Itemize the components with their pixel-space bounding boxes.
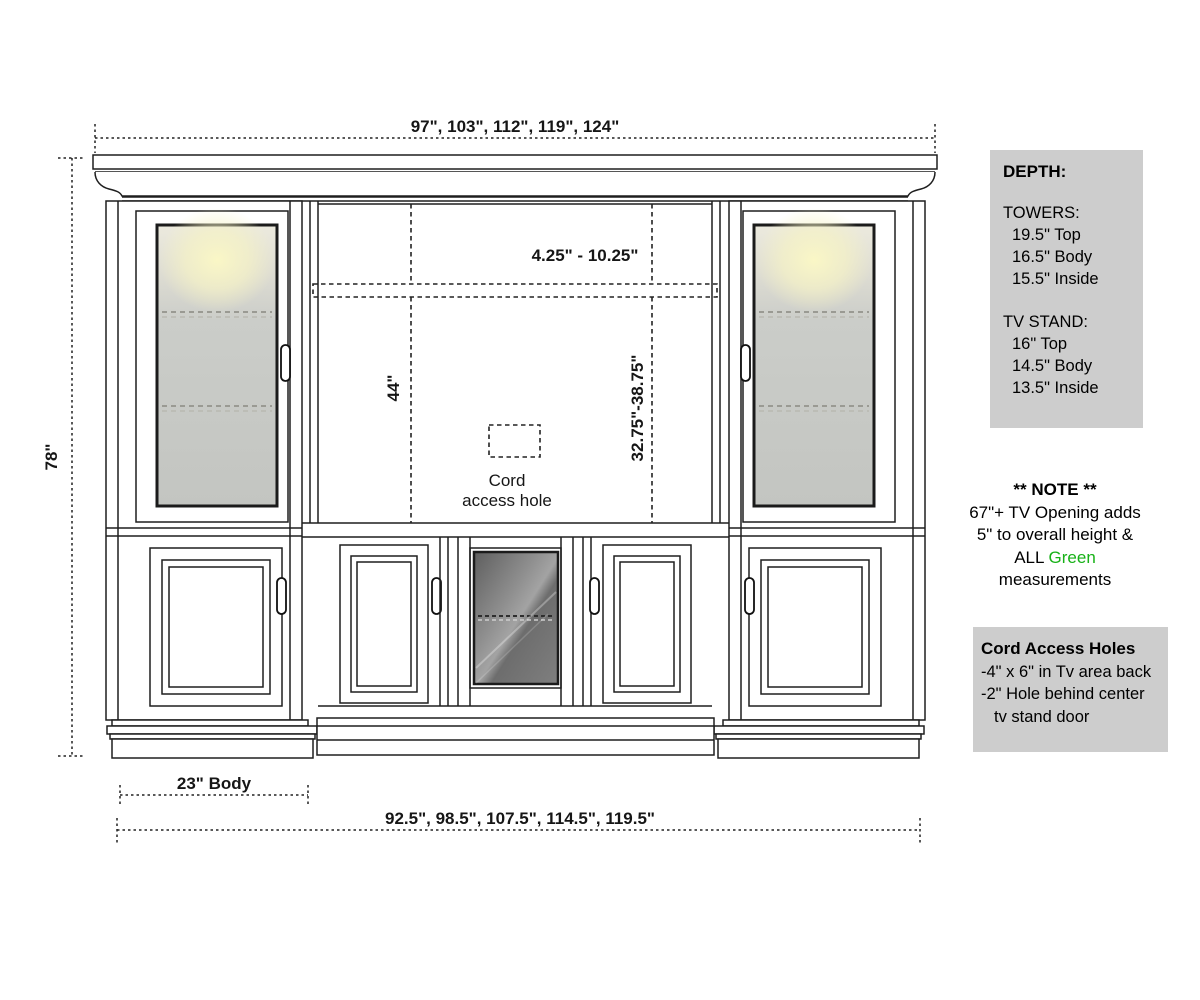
left-plinth	[107, 720, 317, 758]
tv-stand-depth-top: 16" Top	[1003, 333, 1139, 355]
tv-height-label: 44"	[384, 375, 403, 402]
cord-access-panel: Cord Access Holes -4" x 6" in Tv area ba…	[973, 627, 1168, 752]
cord-access-line3: tv stand door	[981, 706, 1164, 729]
tv-stand-depth-inside: 13.5" Inside	[1003, 377, 1139, 399]
towers-depth-title: TOWERS:	[1003, 202, 1139, 224]
entertainment-center-drawing: 97", 103", 112", 119", 124" 78" 4.25" - …	[0, 0, 1200, 1000]
shelf-range-label: 4.25" - 10.25"	[532, 246, 639, 265]
left-lower-door-handle	[277, 578, 286, 614]
note-title: ** NOTE **	[942, 479, 1168, 502]
towers-depth-inside: 15.5" Inside	[1003, 268, 1139, 290]
note-line2: 5" to overall height &	[942, 524, 1168, 547]
towers-depth-top: 19.5" Top	[1003, 224, 1139, 246]
right-plinth	[714, 720, 924, 758]
right-lower-door-handle	[745, 578, 754, 614]
cord-hole-label-line2: access hole	[462, 491, 552, 510]
tv-opening-label: 32.75"-38.75"	[628, 355, 647, 462]
note-green-word: Green	[1049, 548, 1096, 567]
tv-stand-base	[317, 718, 714, 755]
left-tower	[106, 201, 317, 758]
right-tower	[714, 201, 925, 758]
cord-access-line1: -4" x 6" in Tv area back	[981, 661, 1164, 684]
body-width-label: 23" Body	[177, 774, 252, 793]
height-dimension	[58, 158, 84, 756]
right-upper-door-handle	[741, 345, 750, 381]
cord-access-title: Cord Access Holes	[981, 638, 1164, 661]
note-line3: ALL Green	[942, 547, 1168, 570]
note-line1: 67"+ TV Opening adds	[942, 502, 1168, 525]
left-upper-door-handle	[281, 345, 290, 381]
towers-depth-body: 16.5" Body	[1003, 246, 1139, 268]
cord-access-line2: -2" Hole behind center	[981, 683, 1164, 706]
tv-stand-left-door	[340, 545, 428, 703]
left-light-glow	[159, 208, 275, 312]
height-label: 78"	[42, 444, 61, 471]
cord-hole-label-line1: Cord	[489, 471, 526, 490]
depth-title: DEPTH:	[1003, 161, 1139, 183]
right-light-glow	[756, 208, 872, 312]
crown-molding	[93, 155, 937, 201]
adjustable-shelf-band	[313, 284, 717, 297]
tv-stand-right-door	[603, 545, 691, 703]
cord-access-hole	[489, 425, 540, 457]
depth-info-panel: DEPTH: TOWERS: 19.5" Top 16.5" Body 15.5…	[990, 150, 1143, 428]
tv-stand-depth-title: TV STAND:	[1003, 311, 1139, 333]
note-panel: ** NOTE ** 67"+ TV Opening adds 5" to ov…	[942, 479, 1168, 592]
tv-right-door-handle	[590, 578, 599, 614]
note-line4: measurements	[942, 569, 1168, 592]
top-width-label: 97", 103", 112", 119", 124"	[411, 117, 620, 136]
tv-stand-depth-body: 14.5" Body	[1003, 355, 1139, 377]
tv-center-glass-door	[474, 552, 558, 684]
bottom-width-label: 92.5", 98.5", 107.5", 114.5", 119.5"	[385, 809, 655, 828]
